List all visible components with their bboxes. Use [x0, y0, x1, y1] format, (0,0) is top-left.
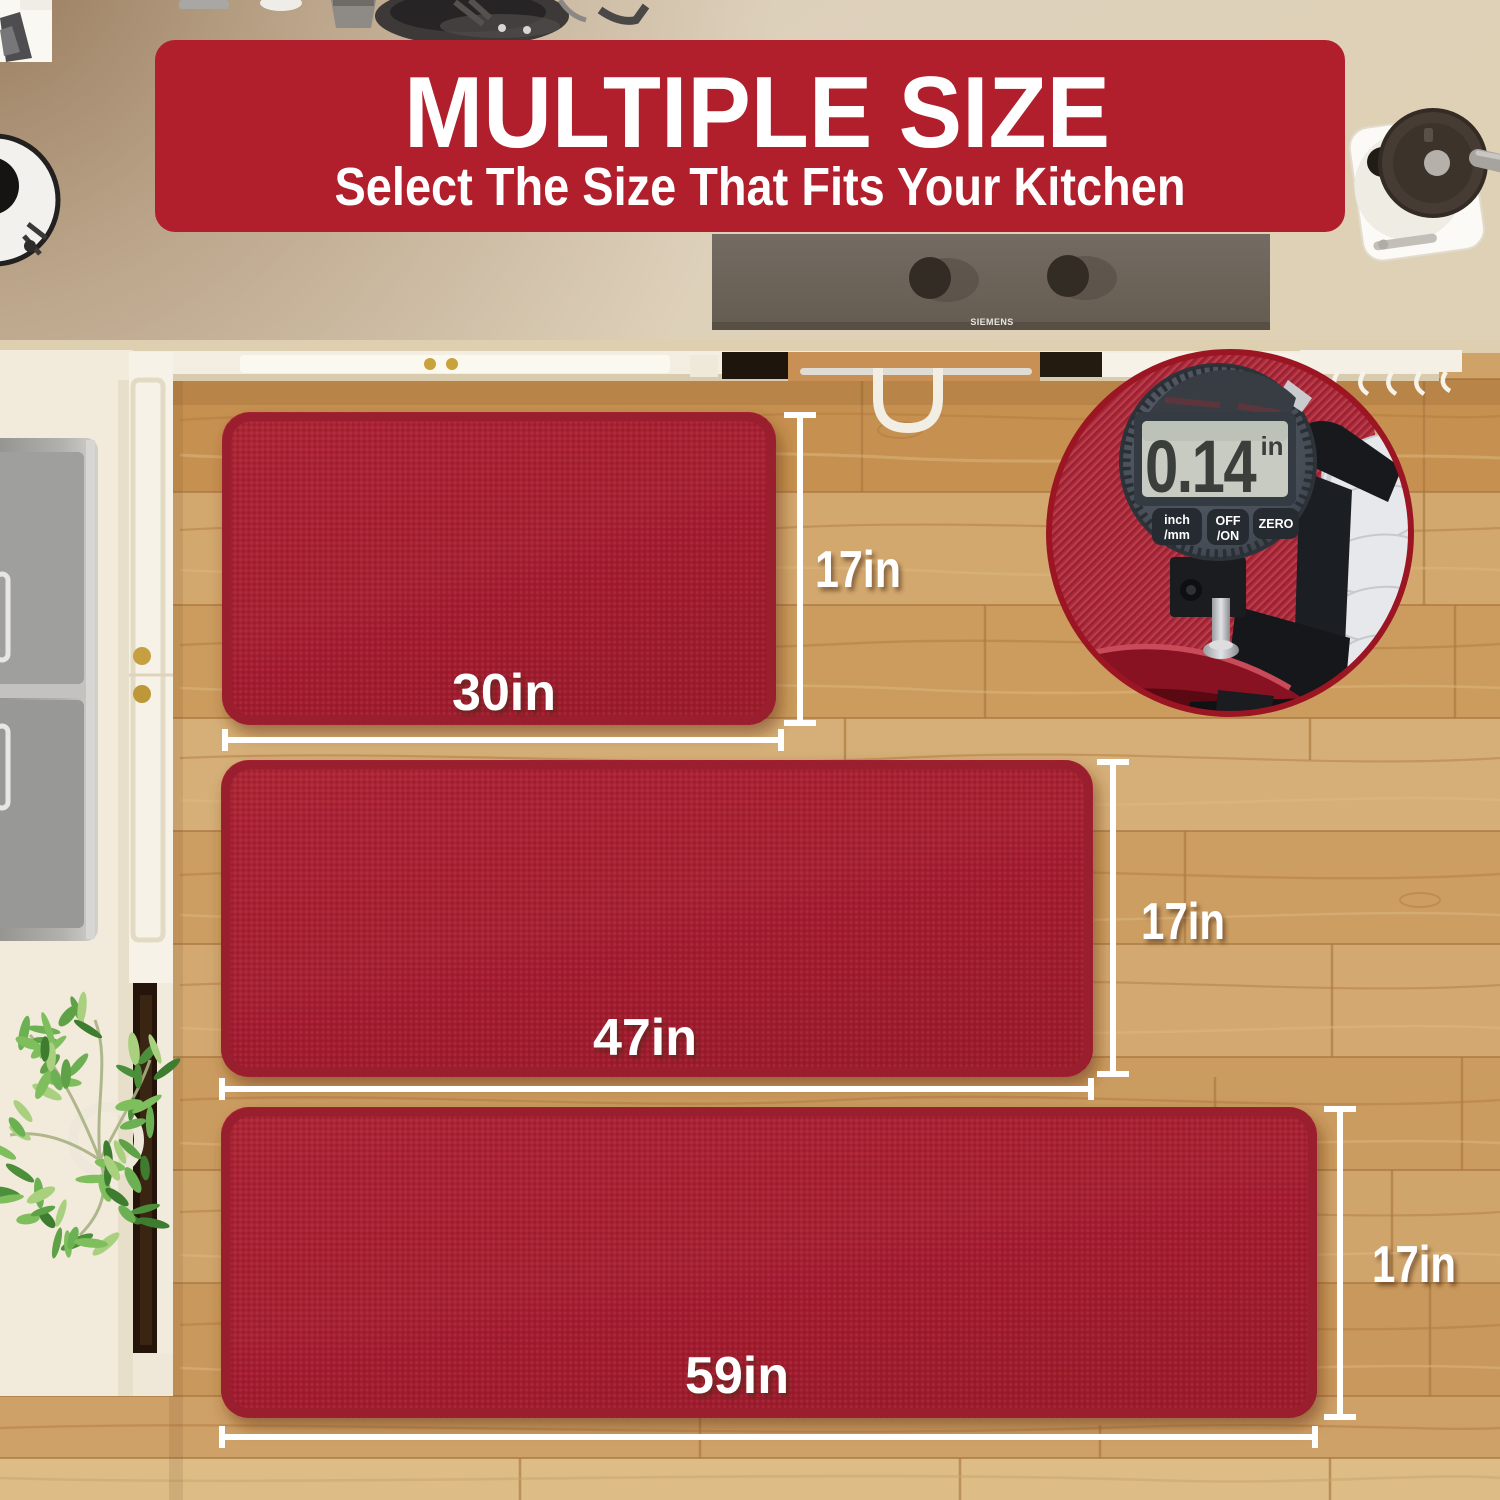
svg-text:/mm: /mm [1164, 528, 1190, 542]
svg-text:MULTIPLE SIZE: MULTIPLE SIZE [404, 57, 1110, 169]
svg-text:0.14: 0.14 [1145, 425, 1256, 508]
svg-text:17in: 17in [1141, 893, 1225, 951]
svg-text:/ON: /ON [1217, 529, 1239, 543]
svg-text:Select The Size That Fits Your: Select The Size That Fits Your Kitchen [335, 157, 1186, 217]
svg-text:SIEMENS: SIEMENS [970, 317, 1013, 327]
svg-text:in: in [1260, 431, 1283, 461]
svg-text:ZERO: ZERO [1259, 517, 1294, 531]
svg-text:17in: 17in [1372, 1236, 1456, 1294]
svg-text:17in: 17in [815, 541, 901, 599]
svg-text:30in: 30in [452, 664, 556, 722]
svg-text:inch: inch [1164, 513, 1190, 527]
svg-text:47in: 47in [593, 1009, 697, 1067]
svg-text:OFF: OFF [1216, 514, 1241, 528]
svg-text:59in: 59in [685, 1347, 789, 1405]
